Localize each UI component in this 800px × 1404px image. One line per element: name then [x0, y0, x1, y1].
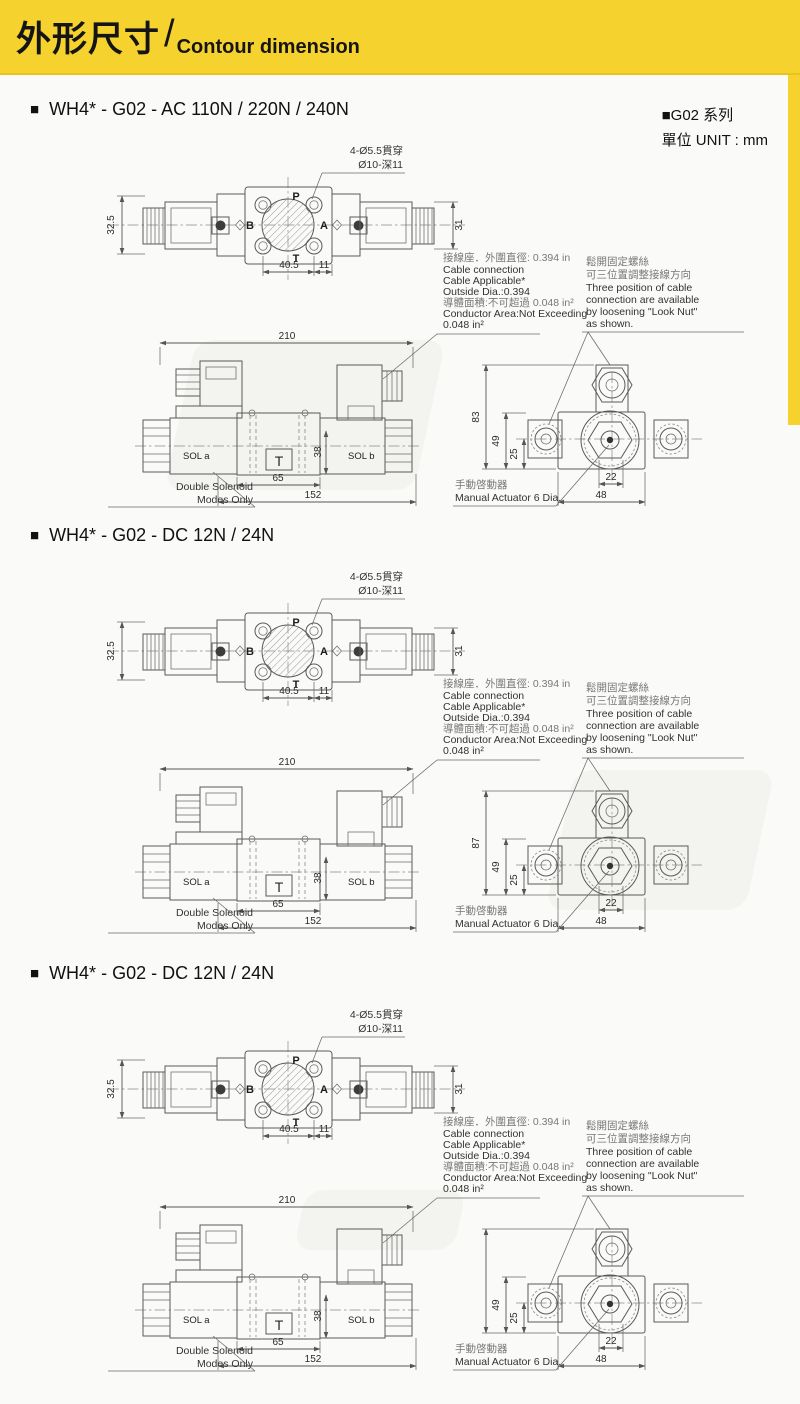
sol-b-label: SOL b — [348, 1315, 375, 1326]
dim-block-height: 38 — [313, 1310, 324, 1322]
manual-actuator-note-en: Manual Actuator 6 Dia. — [455, 492, 561, 504]
manual-actuator-note-en: Manual Actuator 6 Dia. — [455, 1356, 561, 1368]
hole-callout-line1: 4-Ø5.5貫穿 — [350, 144, 403, 157]
page: 外形尺寸 / Contour dimension ■G02 系列 單位 UNIT… — [0, 0, 800, 1238]
sol-a-label: SOL a — [183, 1315, 210, 1326]
section-title: ■ WH4* - G02 - DC 12N / 24N — [30, 960, 800, 986]
position-note-line5: by loosening "Look Nut" — [586, 732, 698, 744]
section: ■ WH4* - G02 - DC 12N / 24N 4-Ø5.5貫穿 Ø10… — [0, 522, 800, 966]
section: ■ WH4* - G02 - AC 110N / 220N / 240N 4-Ø… — [0, 96, 800, 540]
double-solenoid-note-line2: Modes Only — [197, 1358, 254, 1370]
position-note-line3: Three position of cable — [586, 1146, 692, 1158]
cable-note-line7: 0.048 in² — [443, 1183, 484, 1195]
top-view: P B A T 32.5 31 — [106, 1041, 465, 1144]
dim-overall-length: 210 — [279, 331, 296, 342]
side-view: 210 SOL a — [108, 1195, 422, 1371]
position-note-line5: by loosening "Look Nut" — [586, 1170, 698, 1182]
position-note-line6: as shown. — [586, 318, 633, 330]
dimension-drawing: 4-Ø5.5貫穿 Ø10-深11 — [0, 558, 800, 962]
dim-hole-span: 40.5 — [279, 1124, 299, 1135]
dim-end-48: 48 — [595, 490, 607, 501]
position-note-line4: connection are available — [586, 720, 699, 732]
manual-actuator-note-en: Manual Actuator 6 Dia. — [455, 918, 561, 930]
dim-end-height: 83 — [471, 411, 482, 423]
dim-end-48: 48 — [595, 916, 607, 927]
dim-top-right-height: 31 — [454, 645, 465, 657]
model-code: WH4* - G02 - DC 12N / 24N — [49, 525, 274, 546]
dim-block-width: 65 — [272, 1337, 284, 1348]
hole-callout-line2: Ø10-深11 — [358, 1023, 403, 1035]
position-note-line2: 可三位置調整接線方向 — [586, 268, 691, 281]
dim-end-22: 22 — [605, 898, 617, 909]
dim-body-length: 152 — [305, 916, 322, 927]
manual-actuator-note-zh: 手動啓動器 — [455, 904, 508, 917]
port-label-a: A — [320, 646, 328, 658]
dim-end-25: 25 — [509, 874, 520, 886]
cable-connection-note: 接線座．外圍直徑: 0.394 in Cable connection Cabl… — [383, 251, 587, 379]
dim-end-49: 49 — [491, 435, 502, 447]
dim-end-48: 48 — [595, 1354, 607, 1365]
position-note-line1: 鬆開固定螺絲 — [586, 1119, 649, 1132]
cable-note-line1: 接線座．外圍直徑: 0.394 in — [443, 251, 570, 264]
port-label-p: P — [292, 1055, 299, 1067]
double-solenoid-note-line2: Modes Only — [197, 494, 254, 506]
bullet-square-icon: ■ — [30, 528, 39, 543]
sol-b-label: SOL b — [348, 877, 375, 888]
position-note-line1: 鬆開固定螺絲 — [586, 255, 649, 268]
port-label-b: B — [246, 1084, 254, 1096]
double-solenoid-note-line2: Modes Only — [197, 920, 254, 932]
page-header: 外形尺寸 / Contour dimension — [0, 0, 800, 75]
hole-callout-line1: 4-Ø5.5貫穿 — [350, 570, 403, 583]
dim-end-22: 22 — [605, 472, 617, 483]
hole-callout-line2: Ø10-深11 — [358, 585, 403, 597]
dim-end-22: 22 — [605, 1336, 617, 1347]
sol-b-label: SOL b — [348, 451, 375, 462]
position-note-line1: 鬆開固定螺絲 — [586, 681, 649, 694]
side-view: 210 SOL a — [108, 331, 422, 507]
dim-end-25: 25 — [509, 448, 520, 460]
sol-a-label: SOL a — [183, 451, 210, 462]
cable-position-note: 鬆開固定螺絲 可三位置調整接線方向 Three position of cabl… — [549, 681, 744, 850]
page-title-en: Contour dimension — [177, 36, 360, 59]
side-view: 210 SOL a — [108, 757, 422, 933]
cable-position-note: 鬆開固定螺絲 可三位置調整接線方向 Three position of cabl… — [549, 1119, 744, 1288]
dim-block-height: 38 — [313, 446, 324, 458]
cable-note-line7: 0.048 in² — [443, 745, 484, 757]
section: ■ WH4* - G02 - DC 12N / 24N 4-Ø5.5貫穿 Ø10… — [0, 960, 800, 1404]
position-note-line6: as shown. — [586, 744, 633, 756]
dim-block-width: 65 — [272, 473, 284, 484]
model-code: WH4* - G02 - DC 12N / 24N — [49, 963, 274, 984]
manual-actuator-note-zh: 手動啓動器 — [455, 478, 508, 491]
dim-end-49: 49 — [491, 861, 502, 873]
position-note-line2: 可三位置調整接線方向 — [586, 694, 691, 707]
dim-end-49: 49 — [491, 1299, 502, 1311]
tank-port-label: T — [275, 453, 284, 469]
position-note-line3: Three position of cable — [586, 282, 692, 294]
double-solenoid-note-line1: Double Solenoid — [176, 481, 253, 493]
dim-hole-edge: 11 — [319, 260, 330, 271]
port-label-p: P — [292, 617, 299, 629]
port-label-b: B — [246, 220, 254, 232]
position-note-line4: connection are available — [586, 294, 699, 306]
cable-connection-note: 接線座．外圍直徑: 0.394 in Cable connection Cabl… — [383, 1115, 587, 1243]
title-divider: / — [164, 13, 175, 56]
dim-top-left-height: 32.5 — [106, 1079, 117, 1099]
position-note-line4: connection are available — [586, 1158, 699, 1170]
bullet-square-icon: ■ — [30, 102, 39, 117]
double-solenoid-note-line1: Double Solenoid — [176, 1345, 253, 1357]
position-note-line5: by loosening "Look Nut" — [586, 306, 698, 318]
cable-connection-note: 接線座．外圍直徑: 0.394 in Cable connection Cabl… — [383, 677, 587, 805]
end-view: 49 25 22 48 手動啓動器 Manual Actuator 6 Dia. — [453, 1229, 702, 1370]
position-note-line6: as shown. — [586, 1182, 633, 1194]
port-label-a: A — [320, 220, 328, 232]
dim-hole-edge: 11 — [319, 1124, 330, 1135]
dim-end-25: 25 — [509, 1312, 520, 1324]
hole-callout: 4-Ø5.5貫穿 Ø10-深11 — [312, 144, 405, 199]
page-title-zh: 外形尺寸 — [16, 11, 160, 62]
position-note-line3: Three position of cable — [586, 708, 692, 720]
end-view: 87 49 25 22 48 手動啓動器 Manual Actuator 6 D… — [453, 791, 702, 932]
dim-block-width: 65 — [272, 899, 284, 910]
dimension-drawing: 4-Ø5.5貫穿 Ø10-深11 — [0, 996, 800, 1400]
end-view: 83 49 25 22 48 手動啓動器 Manual Actuator 6 D… — [453, 365, 702, 506]
position-note-line2: 可三位置調整接線方向 — [586, 1132, 691, 1145]
cable-note-line7: 0.048 in² — [443, 319, 484, 331]
hole-callout-line2: Ø10-深11 — [358, 159, 403, 171]
top-view: P B A T 32.5 31 — [106, 603, 465, 706]
section-title: ■ WH4* - G02 - AC 110N / 220N / 240N — [30, 96, 800, 122]
dim-end-height: 87 — [471, 837, 482, 849]
dim-overall-length: 210 — [279, 757, 296, 768]
sol-a-label: SOL a — [183, 877, 210, 888]
dim-hole-span: 40.5 — [279, 686, 299, 697]
hole-callout: 4-Ø5.5貫穿 Ø10-深11 — [312, 1008, 405, 1063]
model-code: WH4* - G02 - AC 110N / 220N / 240N — [49, 99, 349, 120]
dim-body-length: 152 — [305, 490, 322, 501]
tank-port-label: T — [275, 1317, 284, 1333]
hole-callout: 4-Ø5.5貫穿 Ø10-深11 — [312, 570, 405, 625]
dim-top-right-height: 31 — [454, 219, 465, 231]
tank-port-label: T — [275, 879, 284, 895]
dim-top-right-height: 31 — [454, 1083, 465, 1095]
top-view: P B A T 32.5 31 — [106, 177, 465, 280]
bullet-square-icon: ■ — [30, 966, 39, 981]
port-label-b: B — [246, 646, 254, 658]
hole-callout-line1: 4-Ø5.5貫穿 — [350, 1008, 403, 1021]
port-label-a: A — [320, 1084, 328, 1096]
port-label-p: P — [292, 191, 299, 203]
dim-block-height: 38 — [313, 872, 324, 884]
manual-actuator-note-zh: 手動啓動器 — [455, 1342, 508, 1355]
dim-overall-length: 210 — [279, 1195, 296, 1206]
double-solenoid-note-line1: Double Solenoid — [176, 907, 253, 919]
dim-hole-edge: 11 — [319, 686, 330, 697]
dim-body-length: 152 — [305, 1354, 322, 1365]
dim-top-left-height: 32.5 — [106, 215, 117, 235]
dimension-drawing: 4-Ø5.5貫穿 Ø10-深11 — [0, 132, 800, 536]
cable-note-line1: 接線座．外圍直徑: 0.394 in — [443, 1115, 570, 1128]
dim-top-left-height: 32.5 — [106, 641, 117, 661]
cable-note-line1: 接線座．外圍直徑: 0.394 in — [443, 677, 570, 690]
cable-position-note: 鬆開固定螺絲 可三位置調整接線方向 Three position of cabl… — [549, 255, 744, 424]
dim-hole-span: 40.5 — [279, 260, 299, 271]
section-title: ■ WH4* - G02 - DC 12N / 24N — [30, 522, 800, 548]
